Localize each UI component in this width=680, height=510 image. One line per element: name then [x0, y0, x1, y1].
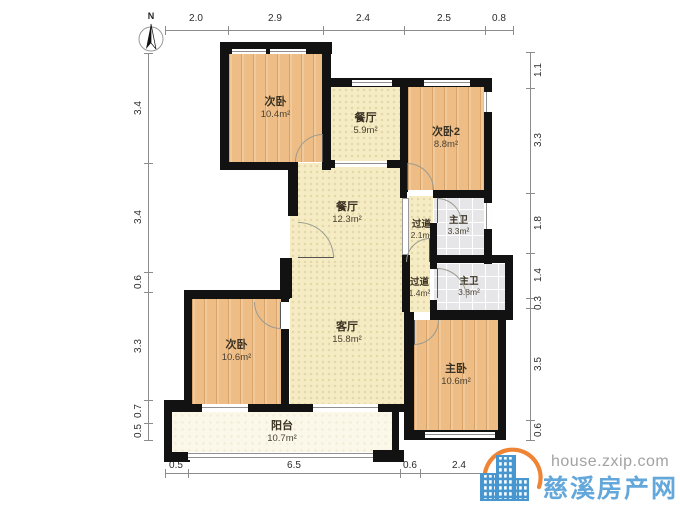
- room-area-label: 3.3m²: [448, 226, 470, 236]
- wall: [498, 312, 506, 440]
- room-name-label: 次卧: [222, 339, 252, 352]
- room-name-label: 次卧: [261, 96, 291, 109]
- wall: [322, 42, 331, 170]
- dim-line-right: [530, 52, 531, 440]
- dim-label: 1.1: [533, 55, 545, 85]
- window: [424, 80, 470, 86]
- dim-tick: [144, 163, 153, 164]
- dim-label: 3.3: [533, 125, 545, 155]
- balcony-window: [188, 452, 373, 460]
- dim-label: 6.5: [279, 460, 309, 471]
- room-area-label: 15.8m²: [332, 334, 362, 345]
- dim-tick: [485, 26, 486, 35]
- wall: [430, 255, 513, 263]
- wall: [322, 160, 335, 168]
- wall: [433, 190, 492, 198]
- dim-tick: [323, 26, 324, 35]
- room-name-label: 次卧2: [432, 126, 460, 139]
- wall: [378, 404, 404, 412]
- room-area-label: 8.8m²: [432, 139, 460, 150]
- dim-line-top: [165, 30, 513, 31]
- wall: [430, 263, 437, 269]
- room-balcony: 阳台10.7m²: [172, 412, 392, 452]
- wall: [402, 255, 410, 312]
- room-area-label: 10.4m²: [261, 109, 291, 120]
- room-name-label: 阳台: [267, 420, 297, 433]
- room-living: 客厅15.8m²: [290, 263, 404, 404]
- window: [232, 49, 266, 54]
- dim-tick: [513, 26, 514, 35]
- dim-label: 0.6: [133, 267, 145, 297]
- dim-label: 3.4: [133, 202, 145, 232]
- wall: [400, 190, 407, 198]
- window: [270, 49, 306, 54]
- dim-label: 0.6: [533, 415, 545, 445]
- dim-tick: [144, 423, 153, 424]
- room-area-label: 5.9m²: [353, 125, 377, 136]
- dim-line-left: [148, 53, 149, 440]
- dim-tick: [144, 292, 153, 293]
- wall: [184, 404, 202, 412]
- dim-label: 2.9: [260, 13, 290, 24]
- dim-label: 2.4: [444, 460, 474, 471]
- wall: [288, 162, 298, 216]
- wall: [220, 42, 229, 170]
- room-name-label: 餐厅: [353, 112, 377, 125]
- room-name-label: 客厅: [332, 321, 362, 334]
- room-name-label: 主卧: [441, 363, 471, 376]
- dim-line-bottom: [165, 473, 498, 474]
- north-label: N: [148, 11, 155, 21]
- dim-label: 3.3: [133, 331, 145, 361]
- dim-tick: [404, 26, 405, 35]
- dim-tick: [144, 440, 153, 441]
- wall: [373, 450, 404, 462]
- room-hallway-lower: 过道1.4m²: [409, 263, 430, 312]
- room-area-label: 10.7m²: [267, 433, 297, 444]
- wall: [505, 255, 513, 318]
- window: [335, 161, 387, 167]
- window: [425, 432, 495, 438]
- dim-tick: [526, 193, 535, 194]
- dim-label: 2.5: [429, 13, 459, 24]
- wall: [184, 290, 192, 412]
- dim-label: 2.4: [348, 13, 378, 24]
- dim-label: 2.0: [181, 13, 211, 24]
- window: [484, 92, 492, 112]
- dim-tick: [526, 52, 535, 53]
- wall: [280, 258, 292, 298]
- dim-tick: [144, 272, 153, 273]
- wall: [404, 312, 414, 440]
- window: [352, 80, 392, 86]
- wall: [387, 160, 400, 168]
- dim-tick: [526, 253, 535, 254]
- wall: [438, 312, 506, 320]
- wall: [184, 290, 290, 299]
- room-area-label: 10.6m²: [441, 376, 471, 387]
- wall: [220, 162, 295, 170]
- dim-tick: [526, 88, 535, 89]
- wall: [164, 452, 190, 462]
- dim-label: 0.8: [484, 13, 514, 24]
- wall: [248, 404, 313, 412]
- dim-label: 0.5: [133, 416, 145, 446]
- north-compass-icon: N: [132, 8, 170, 60]
- dim-label: 1.8: [533, 208, 545, 238]
- floor-plan: N 2.0 2.9 2.4 2.5 0.8 0.5 6.5 0.6 2.4 3.…: [0, 0, 680, 510]
- room-area-label: 10.6m²: [222, 352, 252, 363]
- room-name-label: 餐厅: [332, 201, 362, 214]
- dim-label: 1.4: [533, 260, 545, 290]
- dim-label: 3.5: [533, 349, 545, 379]
- dim-label: 3.4: [133, 93, 145, 123]
- room-area-label: 1.4m²: [409, 288, 431, 298]
- sliding-door: [402, 198, 409, 255]
- dim-label: 0.3: [533, 288, 545, 318]
- room-name-label: 过道: [409, 277, 431, 288]
- wall: [392, 412, 399, 462]
- sliding-door: [313, 405, 378, 411]
- window: [202, 405, 248, 411]
- dim-tick: [144, 400, 153, 401]
- wall: [281, 329, 289, 412]
- window: [484, 203, 492, 229]
- room-area-label: 12.3m²: [332, 214, 362, 225]
- dim-tick: [228, 26, 229, 35]
- watermark-site-name: 慈溪房产网: [543, 469, 678, 505]
- room-dining-small: 餐厅5.9m²: [331, 87, 400, 162]
